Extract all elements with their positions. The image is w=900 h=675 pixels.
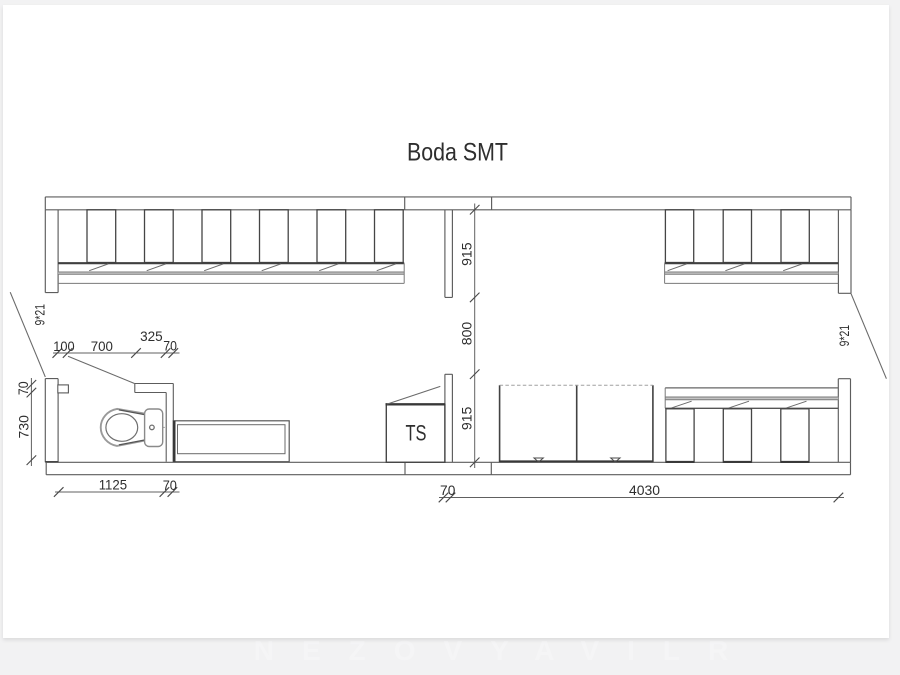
svg-text:9*21: 9*21 bbox=[837, 325, 852, 347]
svg-text:70: 70 bbox=[163, 339, 177, 354]
svg-text:70: 70 bbox=[440, 483, 456, 498]
svg-text:70: 70 bbox=[163, 478, 178, 493]
svg-text:4030: 4030 bbox=[629, 483, 660, 498]
svg-text:9*21: 9*21 bbox=[32, 304, 47, 326]
svg-text:800: 800 bbox=[459, 321, 474, 345]
svg-text:100: 100 bbox=[53, 339, 75, 354]
svg-text:1125: 1125 bbox=[99, 478, 127, 493]
svg-text:70: 70 bbox=[16, 381, 31, 395]
svg-text:Boda SMT: Boda SMT bbox=[407, 139, 508, 167]
svg-text:325: 325 bbox=[140, 329, 163, 344]
svg-text:730: 730 bbox=[17, 415, 32, 439]
svg-text:700: 700 bbox=[91, 339, 114, 354]
svg-text:915: 915 bbox=[459, 242, 474, 265]
svg-text:NEZOVYAVILR: NEZOVYAVILR bbox=[254, 635, 756, 666]
svg-text:915: 915 bbox=[459, 407, 474, 431]
svg-text:TS: TS bbox=[406, 421, 427, 446]
